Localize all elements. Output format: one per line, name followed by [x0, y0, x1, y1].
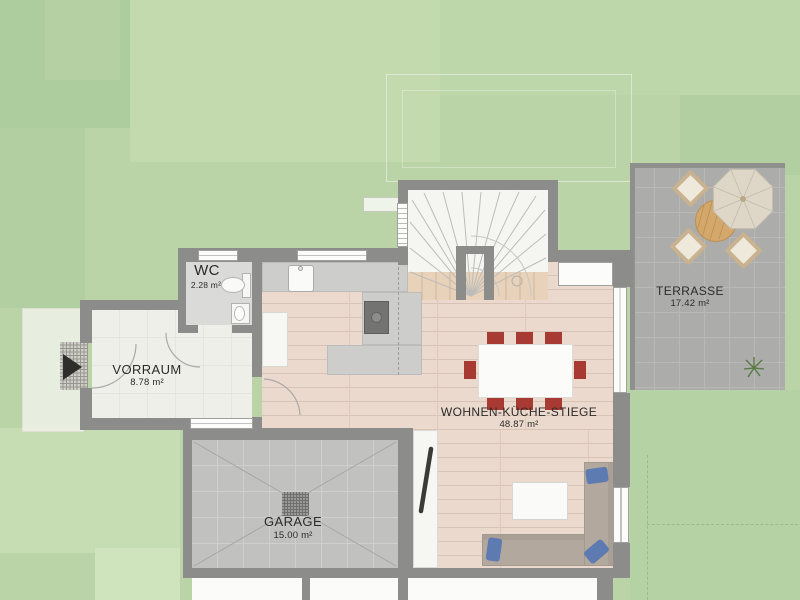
wall-wc-south: [232, 325, 252, 333]
wall-wc-south: [186, 325, 198, 333]
wall-stair-stub: [456, 246, 494, 254]
room-label-vorraum: VORRAUM: [112, 362, 181, 377]
parasol-icon: [713, 169, 772, 228]
wall-vorraum-east: [252, 262, 262, 377]
wall-stair-right: [548, 190, 558, 250]
room-area-terrasse: 17.42 m²: [670, 298, 709, 309]
wall-pillar: [398, 578, 408, 600]
wall-wc-west: [178, 262, 186, 333]
window-wc-north: [198, 250, 238, 261]
room-area-vorraum: 8.78 m²: [130, 377, 164, 388]
plant-icon: [744, 357, 764, 377]
wall-south: [183, 568, 630, 578]
window-kitchen-north: [297, 250, 367, 261]
window-stair-west: [397, 203, 408, 247]
room-area-wohnen: 48.87 m²: [499, 419, 538, 430]
wall-east: [613, 543, 630, 568]
wall-garage-north: [183, 428, 400, 440]
stair-treads: [410, 192, 546, 296]
wall-pillar: [302, 578, 310, 600]
wall-east: [613, 393, 630, 487]
entrance-arrow-icon: [63, 354, 82, 380]
room-label-wohnen: WOHNEN-KÜCHE-STIEGE: [441, 405, 597, 419]
window-vorraum-south: [190, 418, 253, 429]
room-label-terrasse: TERRASSE: [656, 284, 724, 298]
wall-east-corner: [613, 250, 633, 287]
wall-vorraum-south: [80, 418, 190, 430]
room-label-wc: WC: [194, 262, 220, 279]
room-label-garage: GARAGE: [264, 514, 322, 529]
wall-stair-stub: [484, 246, 494, 300]
window-east: [613, 487, 629, 543]
room-area-wc: 2.28 m²: [191, 280, 221, 290]
wall-pillar: [597, 578, 613, 600]
wall-vorraum-west: [80, 310, 92, 343]
window-bench-north: [558, 262, 613, 286]
wall-stair-stub: [456, 246, 466, 300]
wall-vorraum-north: [80, 300, 186, 310]
garage-slope-lines: [194, 442, 396, 566]
wall-garage-west: [183, 440, 192, 578]
sliding-door-terrace: [613, 287, 627, 393]
floor-plan: WC 2.28 m² VORRAUM 8.78 m² WOHNEN-KÜCHE-…: [0, 0, 800, 600]
wardrobe-door-blade: [421, 449, 431, 511]
wall-stair-top: [398, 180, 558, 190]
room-area-garage: 15.00 m²: [273, 530, 312, 541]
wall-garage-east: [398, 428, 413, 578]
